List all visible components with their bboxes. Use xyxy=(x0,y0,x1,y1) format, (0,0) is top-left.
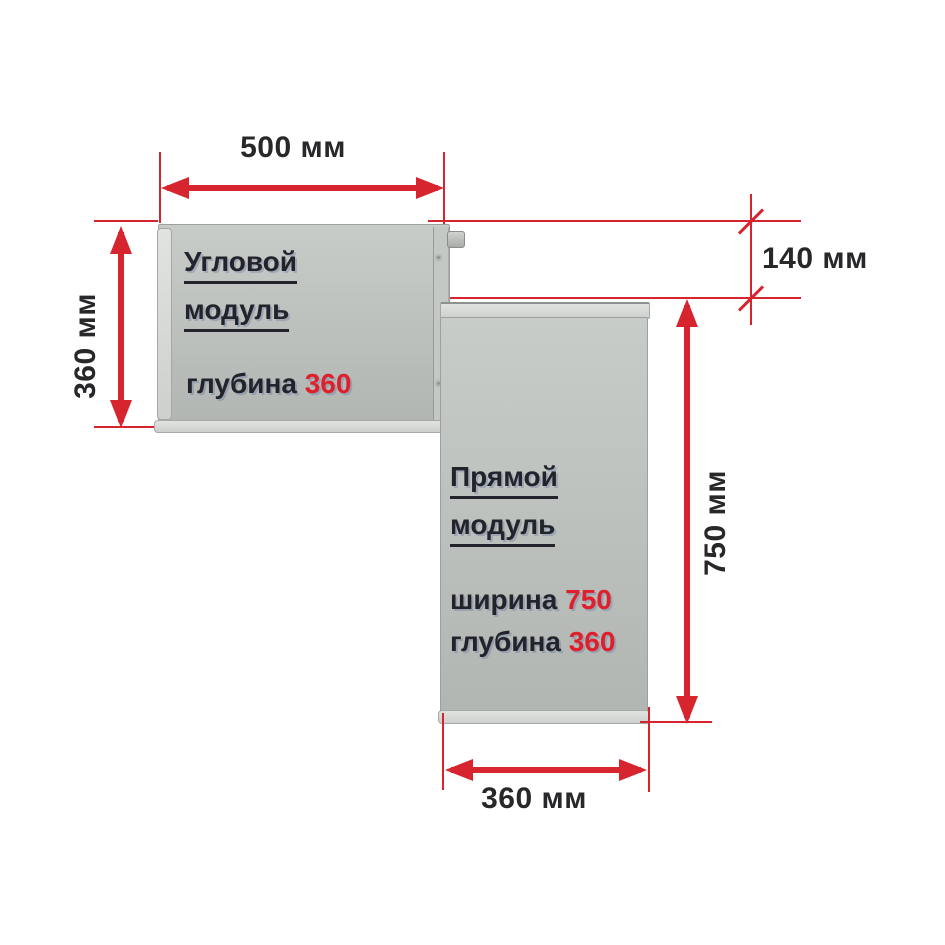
right-offset-line-top xyxy=(428,220,801,222)
corner-module-depth-label: глубина xyxy=(186,368,297,399)
bottom-width-dimension-arrow xyxy=(445,758,647,782)
right-offset-dimension-label: 140 мм xyxy=(762,242,868,276)
corner-module-depth-spec: глубина 360 xyxy=(186,368,351,400)
corner-module-title: Угловой модуль xyxy=(184,246,297,332)
corner-module-left-side-strip xyxy=(157,228,172,420)
left-height-dimension-label: 360 мм xyxy=(69,266,103,426)
corner-module-handle-knob xyxy=(447,231,465,248)
straight-module-depth-label: глубина xyxy=(450,626,561,657)
straight-module-width-label: ширина xyxy=(450,584,557,615)
straight-module-width-spec: ширина 750 xyxy=(450,584,612,616)
right-height-dimension-label: 750 мм xyxy=(699,443,733,603)
corner-module-hinge-dot-top xyxy=(435,254,442,261)
left-height-dimension-arrow xyxy=(109,226,133,428)
right-height-dimension-arrow xyxy=(675,299,699,724)
bottom-width-extension-line-right xyxy=(648,707,650,792)
bottom-width-extension-line-left xyxy=(442,713,444,790)
straight-module-width-value: 750 xyxy=(565,584,612,615)
plan-diagram: 500 мм 360 мм 140 мм Угловой модуль глуб… xyxy=(0,0,945,945)
straight-module-title: Прямой модуль xyxy=(450,461,558,547)
corner-module-depth-value: 360 xyxy=(305,368,352,399)
right-offset-extension-line xyxy=(750,194,752,325)
left-height-extension-line-top xyxy=(94,220,158,222)
straight-module-bottom-strip xyxy=(438,710,650,724)
straight-module-title-line1: Прямой xyxy=(450,461,558,499)
corner-module-title-line1: Угловой xyxy=(184,246,297,284)
top-width-dimension-arrow xyxy=(161,176,444,200)
straight-module-depth-value: 360 xyxy=(569,626,616,657)
right-height-baseline xyxy=(640,721,712,723)
straight-module-title-line2: модуль xyxy=(450,509,555,547)
straight-module-depth-spec: глубина 360 xyxy=(450,626,615,658)
right-offset-line-bottom xyxy=(428,297,801,299)
bottom-width-dimension-label: 360 мм xyxy=(444,782,624,816)
corner-module-title-line2: модуль xyxy=(184,294,289,332)
corner-module-bottom-strip xyxy=(154,420,447,433)
top-width-dimension-label: 500 мм xyxy=(198,131,388,165)
